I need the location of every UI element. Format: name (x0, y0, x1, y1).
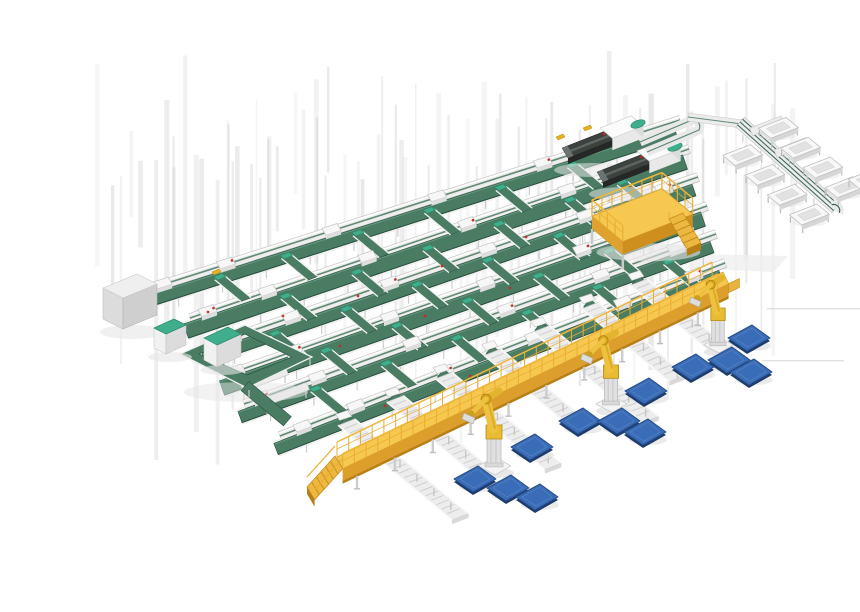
factory-render (40, 16, 860, 596)
trough-bin (723, 145, 763, 174)
scene-svg (40, 16, 860, 596)
trough-bin (789, 204, 829, 233)
